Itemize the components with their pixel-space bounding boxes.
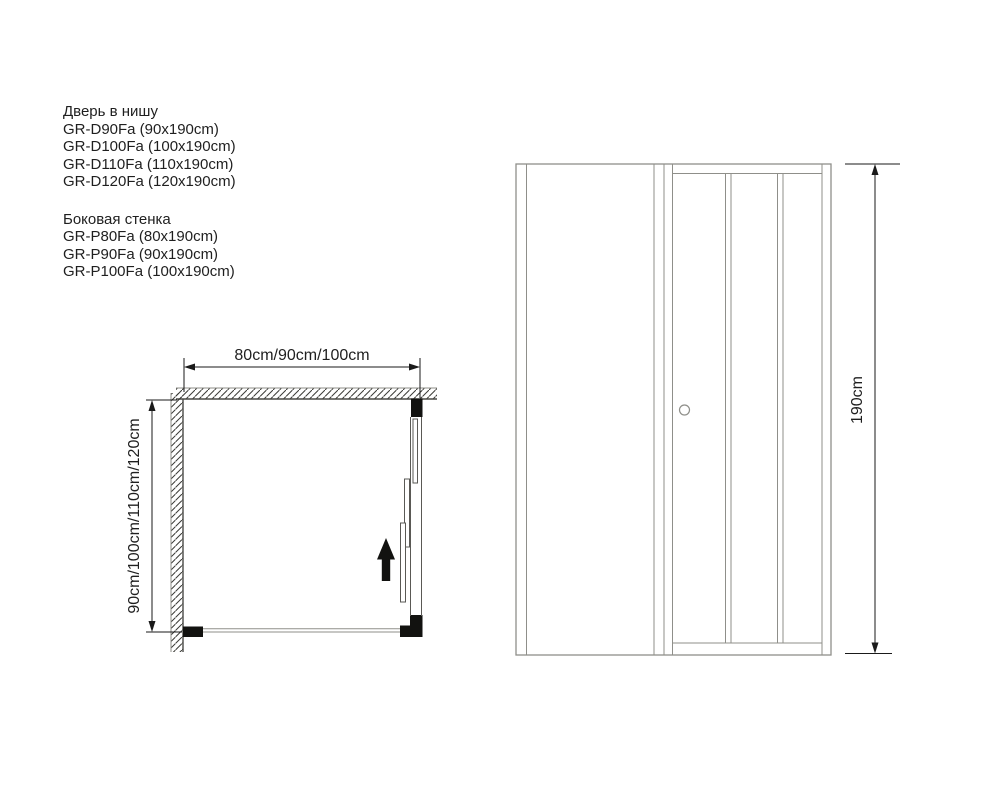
door-panel-1 [413,419,418,483]
drawing-canvas: Дверь в нишу GR-D90Fa (90x190cm) GR-D100… [0,0,1000,800]
slide-arrow-shaft [382,560,390,582]
plan-view: 80cm/90cm/100cm 90cm/100cm/110cm/120cm [126,347,437,652]
top-right-wall-profile [411,399,423,418]
top-wall-hatch [176,388,437,399]
height-arrow-top-icon [872,164,879,175]
elevation-view [516,164,831,655]
bottom-right-corner-profile [400,615,423,637]
plan-depth-label: 90cm/100cm/110cm/120cm [126,418,143,613]
depth-arrow-bottom-icon [149,621,156,632]
elevation-height-label: 190cm [849,376,866,424]
plan-left-wall [171,393,183,652]
left-wall-hatch [171,393,183,652]
width-arrow-left-icon [184,364,195,371]
technical-drawing: 80cm/90cm/100cm 90cm/100cm/110cm/120cm [0,0,1000,800]
plan-side-panel [203,629,402,632]
height-arrow-bottom-icon [872,643,879,654]
bottom-left-wall-profile [183,627,203,638]
slide-direction-arrow-icon [377,538,395,581]
slide-arrow-head [377,538,395,560]
door-handle-icon [680,405,690,415]
plan-width-label: 80cm/90cm/100cm [234,347,369,364]
depth-arrow-top-icon [149,400,156,411]
elevation-outer-frame [516,164,831,655]
centre-post [654,164,673,655]
plan-top-wall [176,388,437,399]
door-mullions [726,174,784,643]
elevation-height-dimension: 190cm [845,164,900,654]
width-arrow-right-icon [409,364,420,371]
plan-sliding-door [401,417,422,616]
door-panel-3 [401,523,406,602]
